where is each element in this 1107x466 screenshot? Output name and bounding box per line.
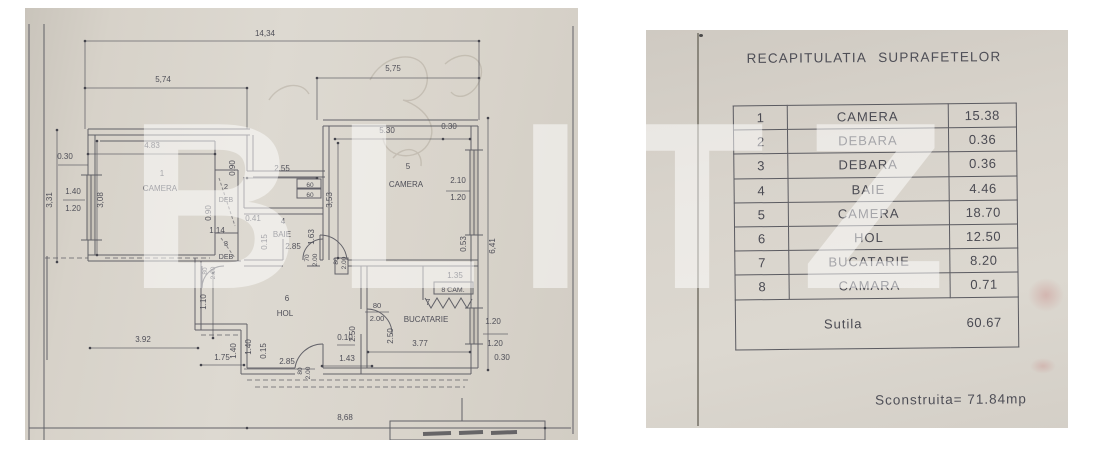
plan-dimension-label: 4.83 [144, 141, 160, 150]
room-name: BAIE [788, 176, 949, 202]
plan-dimension-label: 80 [373, 301, 381, 310]
plan-dimension-label: DEB [219, 197, 234, 204]
plan-dimension-label: 5,75 [385, 64, 401, 73]
table-row: 3DEBARA0.36 [734, 151, 1017, 178]
plan-dimension-label: 1.20 [65, 204, 81, 213]
plan-dimension-label: 8,68 [337, 413, 353, 422]
table-row: 2DEBARA0.36 [733, 127, 1016, 154]
floorplan-photo: 14,345,745,750.301.401.203,313,084.831CA… [25, 8, 578, 440]
floorplan-drawing: 14,345,745,750.301.401.203,313,084.831CA… [25, 8, 578, 440]
plan-dimension-label: 5.30 [379, 126, 395, 135]
table-row: 6HOL12.50 [734, 224, 1017, 251]
room-name: DEBARA [788, 152, 949, 178]
plan-dimension-label: 1.35 [447, 271, 463, 280]
area-table-photo: RECAPITULATIA SUPRAFETELOR 1CAMERA15.382… [646, 30, 1068, 428]
plan-dimension-label: 2 [224, 182, 228, 191]
plan-dimension-label: 2.00 [305, 366, 312, 379]
pink-smudge [1030, 358, 1056, 374]
plan-dimension-label: 2.00 [312, 253, 319, 266]
recap-title: RECAPITULATIA SUPRAFETELOR [724, 49, 1024, 66]
plan-dimension-label: BAIE [273, 230, 291, 239]
plan-dimension-label: DEB [219, 254, 234, 261]
room-name: CAMARA [789, 273, 950, 299]
plan-dimension-label: 2.85 [279, 357, 295, 366]
plan-dimension-label: 0.53 [459, 236, 468, 252]
plan-dimension-label: 3,08 [96, 192, 105, 208]
plan-dimension-label: 3,53 [325, 192, 334, 208]
plan-dimension-label: 0.30 [441, 122, 457, 131]
page-fold-line [697, 33, 699, 426]
plan-dimension-label: 1.20 [450, 193, 466, 202]
plan-dimension-label: 6 [285, 294, 290, 303]
row-number: 8 [735, 275, 789, 300]
area-table: 1CAMERA15.382DEBARA0.363DEBARA0.364BAIE4… [733, 103, 1020, 350]
plan-dimension-label: 1.40 [229, 343, 238, 359]
total-value: 60.67 [950, 297, 1019, 348]
plan-dimension-label: HOL [277, 309, 294, 318]
room-name: BUCATARIE [789, 249, 950, 275]
plan-dimension-label: CAMERA [389, 180, 424, 189]
plan-dimension-label: CAMERA [143, 184, 178, 193]
plan-dimension-label: 2.00 [341, 256, 348, 269]
room-name: DEBARA [787, 128, 948, 154]
pink-smudge [1028, 278, 1064, 312]
plan-dimension-label: 0.90 [204, 205, 213, 221]
plan-dimension-label: 80 [202, 267, 209, 275]
plan-dimension-label: 1 [160, 169, 165, 178]
plan-dimension-label: 0.41 [245, 214, 261, 223]
listing-photo-collage: 14,345,745,750.301.401.203,313,084.831CA… [0, 0, 1107, 466]
plan-dimension-label: 1.20 [487, 339, 503, 348]
row-number: 6 [734, 226, 788, 251]
plan-dimension-label: 6,41 [488, 238, 497, 254]
plan-dimension-label: 3,31 [45, 192, 54, 208]
plan-dimension-label: 1.20 [485, 317, 501, 326]
plan-dimension-label: 14,34 [255, 29, 276, 38]
plan-dimension-label: 8 CAM. [441, 287, 464, 294]
room-area: 4.46 [949, 176, 1017, 201]
room-area: 8.20 [950, 248, 1018, 273]
row-number: 1 [733, 105, 787, 130]
plan-dimension-label: 1.14 [209, 226, 225, 235]
plan-dimension-label: 60 [306, 192, 314, 199]
room-area: 0.36 [949, 151, 1017, 176]
plan-dimension-label: 0.30 [494, 353, 510, 362]
plan-dimension-label: 0.10 [337, 333, 353, 342]
scan-speck [699, 34, 703, 37]
row-number: 4 [734, 178, 788, 203]
total-row: Sutila 60.67 [735, 297, 1019, 350]
plan-dimension-label: 2.10 [450, 176, 466, 185]
plan-dimension-label: 1.75 [214, 353, 230, 362]
plan-dimension-label: 5 [406, 162, 411, 171]
plan-dimension-label: 1.40 [65, 187, 81, 196]
built-area-note: Sconstruita= 71.84mp [851, 391, 1051, 408]
total-label: Sutila [735, 297, 950, 349]
plan-dimension-label: 60 [306, 182, 314, 189]
room-area: 0.71 [950, 272, 1018, 297]
plan-dimension-label: 70 [304, 254, 311, 262]
plan-dimension-label: 0.90 [228, 160, 237, 176]
plan-dimension-label: 0.15 [259, 343, 268, 359]
plan-dimension-label: 0.30 [57, 152, 73, 161]
plan-dimension-label: 3.92 [135, 335, 151, 344]
plan-dimension-label: 80 [297, 367, 304, 375]
table-row: 1CAMERA15.38 [733, 103, 1016, 130]
room-area: 15.38 [948, 103, 1016, 128]
room-name: HOL [788, 225, 949, 251]
plan-dimension-label: 2.85 [285, 242, 301, 251]
plan-dimension-label: BUCATARIE [404, 315, 449, 324]
row-number: 3 [734, 154, 788, 179]
row-number: 5 [734, 202, 788, 227]
room-area: 18.70 [949, 200, 1017, 225]
room-name: CAMERA [788, 200, 949, 226]
row-number: 2 [733, 130, 787, 155]
room-area: 12.50 [949, 224, 1017, 249]
plan-dimension-label: 2.00 [210, 266, 217, 279]
table-row: 4BAIE4.46 [734, 176, 1017, 203]
plan-dimension-label: 4 [281, 217, 286, 226]
row-number: 7 [735, 251, 789, 276]
plan-dimension-label: 2.50 [386, 328, 395, 344]
plan-dimension-label: 3.77 [412, 339, 428, 348]
plan-dimension-label: 2.55 [274, 164, 290, 173]
plan-dimension-label: 80 [333, 257, 340, 265]
plan-dimension-label: 7 [426, 298, 431, 307]
plan-dimension-label: 3 [224, 239, 228, 248]
plan-dimension-label: 1.10 [199, 294, 208, 310]
plan-dimension-label: 5,74 [155, 75, 171, 84]
plan-dimension-label: 1.40 [244, 339, 253, 355]
plan-dimension-label: 2.00 [370, 314, 385, 323]
table-row: 8CAMARA0.71 [735, 272, 1018, 299]
table-row: 7BUCATARIE8.20 [735, 248, 1018, 275]
table-row: 5CAMERA18.70 [734, 200, 1017, 227]
plan-dimension-label: 0.15 [260, 234, 269, 250]
plan-dimension-label: 1.43 [339, 354, 355, 363]
room-area: 0.36 [948, 127, 1016, 152]
room-name: CAMERA [787, 104, 948, 130]
plan-dimension-label: 1.63 [307, 229, 316, 245]
